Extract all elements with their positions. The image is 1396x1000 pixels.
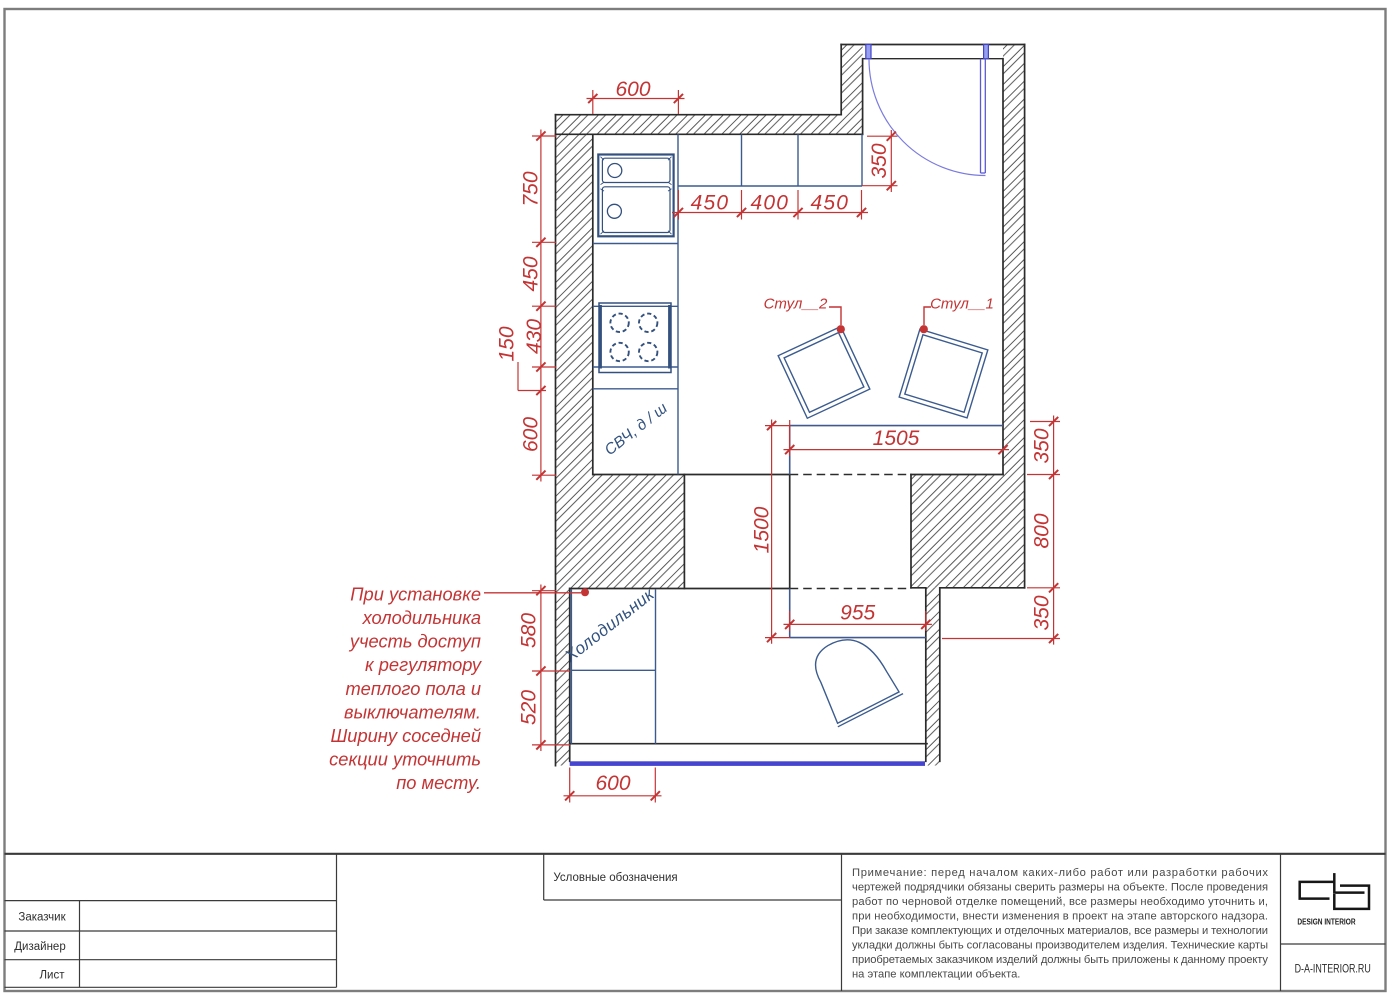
svg-text:600: 600 <box>615 78 650 101</box>
svg-text:580: 580 <box>518 613 541 648</box>
svg-text:При заказе комплектующих и отд: При заказе комплектующих и отделочных ма… <box>852 925 1268 937</box>
svg-text:выключателям.: выключателям. <box>344 701 481 722</box>
svg-text:Лист: Лист <box>40 970 66 982</box>
svg-text:на этапе комплектации объекта.: на этапе комплектации объекта. <box>852 969 1020 981</box>
svg-text:Примечание: перед началом к: Примечание: перед началом каких-либо раб… <box>852 867 1268 879</box>
svg-text:750: 750 <box>520 171 543 206</box>
svg-text:по месту.: по месту. <box>396 772 481 793</box>
svg-text:350: 350 <box>1031 595 1054 630</box>
svg-text:Стул__2: Стул__2 <box>764 296 828 313</box>
svg-text:Заказчик: Заказчик <box>18 912 66 924</box>
svg-text:Ширину соседней: Ширину соседней <box>330 725 481 746</box>
svg-text:450: 450 <box>520 256 543 291</box>
svg-text:450: 450 <box>810 192 849 215</box>
svg-text:при необходимости, внести изме: при необходимости, внести изменения в пр… <box>852 911 1268 923</box>
svg-text:150: 150 <box>496 326 519 361</box>
svg-text:холодильника: холодильника <box>362 607 481 628</box>
svg-text:1500: 1500 <box>751 506 774 553</box>
svg-text:Стул__1: Стул__1 <box>930 296 994 313</box>
svg-text:секции уточнить: секции уточнить <box>329 749 481 770</box>
svg-text:450: 450 <box>691 192 730 215</box>
svg-text:работ по черновой отделке поме: работ по черновой отделке помещений, все… <box>852 896 1268 908</box>
svg-text:600: 600 <box>520 417 543 452</box>
svg-text:Условные обозначения: Условные обозначения <box>553 872 677 884</box>
svg-text:Дизайнер: Дизайнер <box>14 941 65 953</box>
svg-text:350: 350 <box>1031 428 1054 463</box>
svg-text:укладки должны быть согласован: укладки должны быть согласованы производ… <box>852 940 1268 952</box>
svg-text:350: 350 <box>868 143 891 178</box>
svg-text:DESIGN INTERIOR: DESIGN INTERIOR <box>1297 917 1356 927</box>
svg-text:800: 800 <box>1031 513 1054 548</box>
svg-text:При установке: При установке <box>350 583 481 604</box>
svg-text:D-A-INTERIOR.RU: D-A-INTERIOR.RU <box>1295 962 1371 976</box>
svg-text:955: 955 <box>840 602 875 625</box>
svg-text:чертежей подрядчики обязаны св: чертежей подрядчики обязаны сверить разм… <box>852 882 1268 894</box>
svg-text:учесть доступ: учесть доступ <box>348 631 481 652</box>
svg-text:600: 600 <box>595 772 630 795</box>
svg-text:430: 430 <box>523 319 546 354</box>
svg-text:приобретаемых заказчиком издел: приобретаемых заказчиком изделий должны … <box>852 954 1268 966</box>
svg-text:520: 520 <box>518 690 541 725</box>
svg-text:1505: 1505 <box>873 427 920 450</box>
svg-text:к регулятору: к регулятору <box>365 654 483 675</box>
svg-text:теплого пола и: теплого пола и <box>345 678 481 699</box>
svg-text:400: 400 <box>750 192 789 215</box>
